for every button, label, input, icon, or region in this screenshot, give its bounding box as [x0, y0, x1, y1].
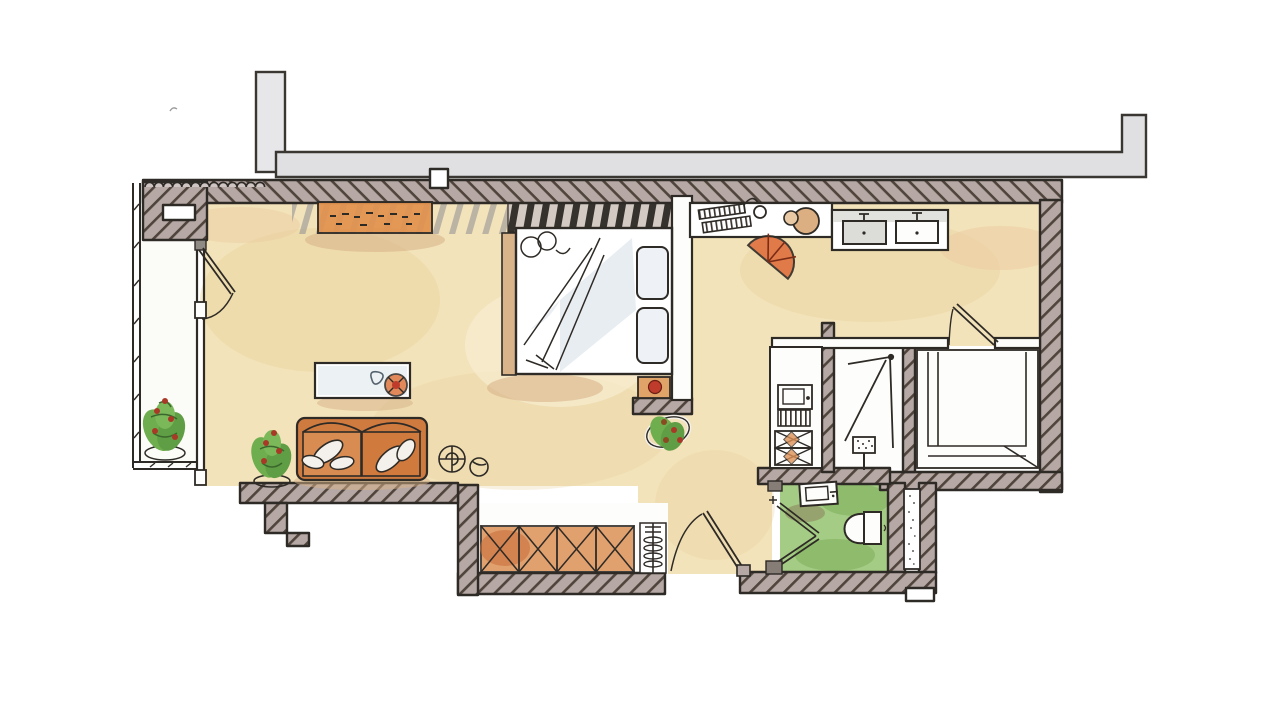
balcony-glass-wall	[197, 240, 204, 485]
berry	[162, 398, 168, 404]
radiator	[640, 523, 666, 573]
pencil-mark	[170, 108, 177, 111]
kitchen-counter	[832, 210, 948, 250]
door-jamb	[195, 470, 206, 485]
bottom-right-wall	[880, 472, 1062, 490]
stool-small	[784, 211, 798, 225]
pillow	[637, 308, 668, 363]
basin-tap	[830, 492, 838, 493]
toilet-tank	[864, 512, 881, 544]
south-wall-step	[287, 533, 309, 546]
berry	[168, 416, 174, 422]
drain	[862, 231, 865, 234]
outer-band	[276, 115, 1146, 177]
window-niche	[163, 205, 195, 220]
hinge-block	[768, 481, 782, 491]
entry-step	[906, 588, 934, 601]
outer-structure	[170, 72, 1146, 177]
berry	[671, 427, 677, 433]
closet-shade	[480, 530, 530, 566]
berry	[663, 437, 669, 443]
duct-right-wall	[919, 483, 936, 573]
mouse	[754, 206, 766, 218]
top-wall	[143, 180, 1062, 203]
basin-body	[799, 482, 837, 507]
duct-shaft	[904, 489, 920, 569]
floor-plan-canvas	[0, 0, 1280, 720]
bowl-fruit	[392, 381, 400, 389]
top-wall-joint	[430, 169, 448, 188]
walkin-top-wall	[995, 338, 1040, 348]
closet-left-wall	[458, 485, 478, 595]
hinge-block	[766, 561, 782, 574]
south-wall-step	[265, 503, 287, 533]
shadow	[487, 374, 603, 402]
berry	[276, 448, 282, 454]
berry	[261, 458, 267, 464]
hinge-block	[737, 565, 750, 576]
sideboard-top	[318, 202, 432, 233]
berry	[271, 430, 277, 436]
kitchen-unit	[770, 347, 822, 468]
shower-walkin-wall	[903, 342, 915, 472]
berry	[661, 419, 667, 425]
bed-side-bench	[502, 233, 516, 375]
oven-knob	[807, 397, 810, 400]
drain	[915, 231, 918, 234]
door-jamb	[195, 302, 206, 318]
berry	[152, 428, 158, 434]
walk-in-floor	[915, 348, 1040, 470]
vent-grill	[778, 410, 810, 426]
duct-channel	[904, 489, 920, 569]
floor-shade	[655, 450, 775, 560]
berry	[677, 437, 683, 443]
closet-bottom-wall	[458, 573, 665, 594]
duct-left-wall	[888, 483, 905, 573]
berry	[172, 434, 178, 440]
floor-plan-drawing	[0, 0, 1280, 720]
shower-control	[853, 437, 875, 453]
apple-decor	[649, 381, 662, 394]
berry	[154, 408, 160, 414]
pillow	[637, 247, 668, 299]
right-wall	[1040, 200, 1062, 492]
shower-pivot	[888, 354, 893, 359]
berry	[263, 440, 269, 446]
sideboard	[305, 202, 445, 252]
washbasin	[799, 482, 838, 507]
